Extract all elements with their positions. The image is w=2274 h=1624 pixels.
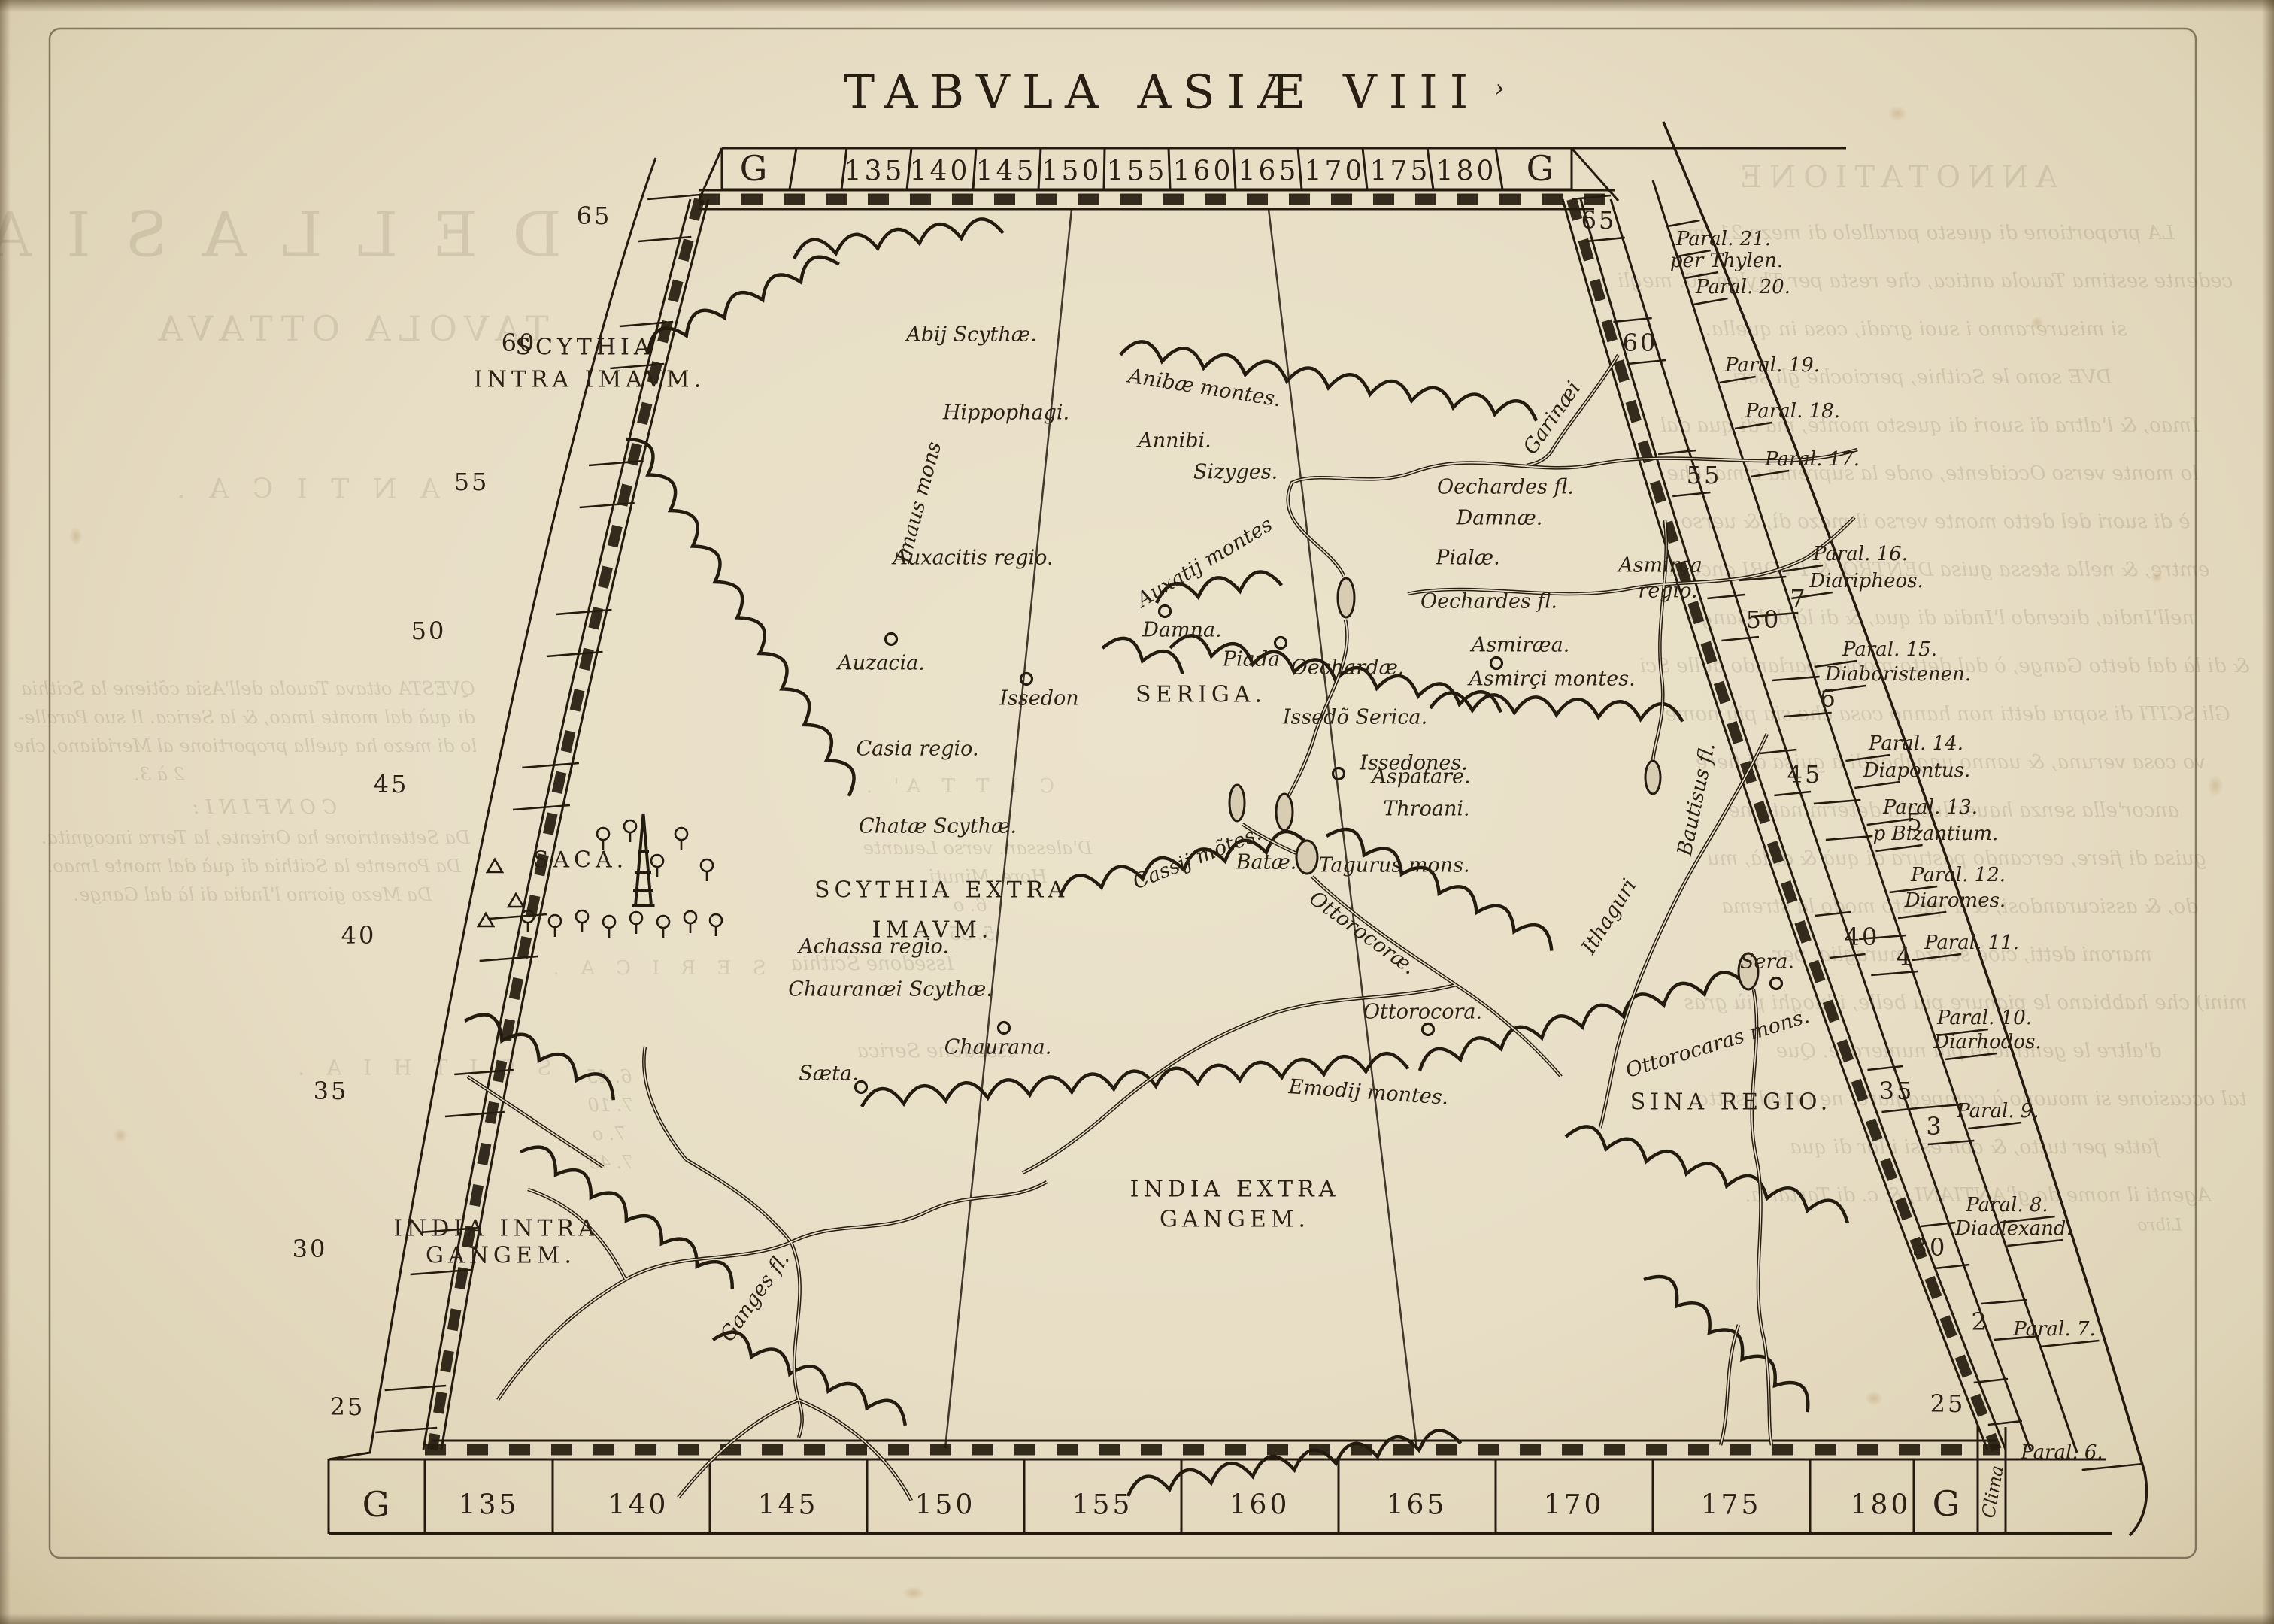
map-label: Chatæ Scythæ. [859, 815, 1017, 838]
map-label: Issedõ Serica. [1283, 706, 1427, 729]
plate-border [50, 29, 2196, 1558]
map-label: Piada [1223, 648, 1280, 671]
right-latitude-number: 35 [1879, 1077, 1915, 1105]
parallel-band-label: Paral. 13. [1883, 796, 1978, 819]
left-latitude-number: 65 [577, 201, 612, 230]
climate-number: 7 [1790, 584, 1807, 613]
map-label: Abij Scythæ. [906, 323, 1036, 347]
parallel-band-label: Paral. 6. [2021, 1441, 2103, 1464]
parallel-band-label: Paral. 14. [1869, 732, 1963, 755]
right-latitude-number: 45 [1787, 760, 1823, 789]
map-label: INDIA EXTRA [1130, 1177, 1340, 1203]
bottom-longitude-number: 175 [1701, 1490, 1762, 1521]
right-latitude-number: 65 [1581, 206, 1617, 235]
parallel-band-label: p Bizantium. [1873, 823, 1999, 845]
parallel-band-label: Paral. 17. [1765, 448, 1860, 471]
mountain-ranges [465, 217, 1852, 1496]
top-longitude-number: 150 [1041, 156, 1102, 187]
parallel-band-label: Paral. 16. [1813, 543, 1908, 565]
climate-number: 2 [1971, 1307, 1988, 1336]
parallel-band-label: Paral. 7. [2013, 1318, 2095, 1341]
right-latitude-number: 30 [1912, 1233, 1948, 1262]
parallel-band-label: Paral. 8. [1966, 1194, 2048, 1216]
parallel-band-label: Diarhodos. [1933, 1031, 2041, 1053]
map-label: Sizyges. [1193, 461, 1278, 484]
map-label: › [1494, 74, 1505, 104]
map-label: Damna. [1142, 619, 1221, 642]
left-latitude-number: 25 [330, 1392, 365, 1421]
map-label: INDIA INTRA [393, 1216, 599, 1242]
corner-g-letter: G [362, 1484, 390, 1525]
fox-spot [1887, 105, 1907, 122]
corner-g-letter: G [740, 148, 768, 189]
bottom-longitude-number: 155 [1072, 1490, 1133, 1521]
right-latitude-number: 60 [1623, 329, 1658, 357]
map-label: SCYTHIA EXTRA [814, 877, 1069, 904]
parallel-band-label: Paral. 19. [1725, 354, 1820, 377]
left-latitude-number: 50 [411, 617, 447, 645]
top-longitude-number: 175 [1370, 156, 1431, 187]
map-label: Auxacitis regio. [893, 547, 1053, 570]
corner-g-letter: G [1527, 148, 1554, 189]
bottom-longitude-number: 180 [1851, 1490, 1912, 1521]
right-latitude-number: 55 [1687, 461, 1722, 489]
parallel-band-label: per Thylen. [1670, 250, 1783, 272]
fox-spot [2207, 774, 2224, 797]
left-latitude-number: 40 [341, 921, 377, 950]
map-label: INTRA IMAVM. [474, 367, 706, 393]
map-label: Ottorocora. [1363, 1001, 1482, 1024]
bottom-longitude-number: 165 [1387, 1490, 1448, 1521]
map-label: Pialæ. [1436, 547, 1500, 570]
antique-map-page: D E L L A S I ATAVOLA OTTAVAA N T I C A … [0, 0, 2274, 1624]
top-longitude-number: 160 [1173, 156, 1234, 187]
map-label: GANGEM. [426, 1243, 576, 1269]
top-longitude-number: 155 [1107, 156, 1168, 187]
top-longitude-number: 135 [844, 156, 905, 187]
top-longitude-number: 170 [1305, 156, 1366, 187]
map-label: Asmiræa. [1472, 634, 1570, 657]
map-label: Asmirçi montes. [1469, 668, 1635, 691]
right-latitude-number: 50 [1746, 605, 1781, 634]
map-label: Aspatare. [1372, 765, 1470, 789]
top-longitude-number: 145 [976, 156, 1037, 187]
parallel-band-label: Diaripheos. [1809, 570, 1923, 592]
map-label: GANGEM. [1160, 1207, 1310, 1233]
parallel-band-label: Paral. 12. [1911, 864, 2006, 886]
map-label: Auzacia. [838, 652, 925, 675]
climate-number: 3 [1926, 1112, 1943, 1141]
bottom-longitude-number: 150 [915, 1490, 976, 1521]
climate-number: 6 [1820, 684, 1837, 713]
rivers [468, 355, 1857, 1501]
corner-g-letter: G [1933, 1483, 1960, 1524]
map-label: Oechardæ. [1291, 656, 1405, 680]
parallel-band-label: Paral. 11. [1924, 932, 2019, 954]
bottom-longitude-number: 160 [1229, 1490, 1290, 1521]
map-label: Sera. [1740, 950, 1794, 974]
parallel-band-label: Paral. 10. [1937, 1007, 2032, 1029]
left-latitude-number: 35 [314, 1077, 349, 1105]
climate-number: 4 [1896, 943, 1913, 971]
parallel-band-label: Diapontus. [1863, 759, 1971, 782]
map-label: Chaurana. [944, 1036, 1052, 1059]
right-latitude-number: 40 [1845, 923, 1880, 951]
parallel-band-label: Paral. 15. [1842, 638, 1937, 661]
parallel-band-label: Paral. 21. [1676, 228, 1771, 250]
parallel-band-label: Diaboristenen. [1825, 663, 1971, 686]
map-label: SERIGA. [1135, 682, 1266, 708]
map-title: TABVLA ASIÆ VIII [844, 65, 1480, 120]
map-label: Chauranæi Scythæ. [788, 978, 993, 1001]
top-longitude-number: 165 [1239, 156, 1299, 187]
saca-tower-and-trees [478, 814, 722, 938]
map-label: Hippophagi. [943, 401, 1069, 425]
fox-spot [2151, 571, 2163, 583]
map-label: Issedon [999, 687, 1078, 710]
map-label: Annibi. [1138, 429, 1211, 453]
map-label: Batæ. [1236, 851, 1297, 874]
top-longitude-number: 140 [910, 156, 971, 187]
map-label: Sæta. [799, 1062, 858, 1086]
parallel-band-label: Diaalexand. [1955, 1217, 2072, 1240]
map-label: Achassa regio. [799, 935, 949, 959]
map-label: Casia regio. [856, 738, 978, 761]
map-label: SACA. [533, 847, 628, 874]
parallel-band-label: Paral. 9. [1957, 1100, 2039, 1123]
top-longitude-number: 180 [1436, 156, 1497, 187]
fox-spot [113, 1128, 128, 1143]
map-label: SINA REGIO. [1630, 1089, 1833, 1116]
map-label: Throani. [1383, 798, 1469, 821]
bottom-longitude-number: 135 [459, 1490, 520, 1521]
map-label: Tagurus mons. [1318, 854, 1469, 877]
parallel-band-label: Diaromes. [1905, 889, 2006, 912]
bottom-longitude-number: 170 [1544, 1490, 1605, 1521]
map-label: Oechardes fl. [1437, 476, 1574, 499]
left-latitude-number: 60 [502, 329, 537, 357]
bottom-longitude-number: 145 [758, 1490, 819, 1521]
left-latitude-number: 55 [454, 468, 490, 496]
left-latitude-number: 45 [374, 770, 409, 798]
fox-spot [69, 526, 83, 546]
fox-spot [2030, 316, 2044, 329]
fox-spot [902, 1586, 925, 1600]
map-label: Damnæ. [1457, 507, 1543, 530]
parallel-band-label: Paral. 18. [1745, 400, 1840, 423]
map-label: Oechardes fl. [1420, 590, 1557, 614]
right-latitude-number: 25 [1930, 1389, 1966, 1418]
fox-spot [1865, 1391, 1883, 1406]
map-label: regio. [1638, 580, 1697, 603]
parallel-band-label: Paral. 20. [1696, 276, 1790, 298]
left-latitude-number: 30 [293, 1235, 328, 1263]
map-label: Asmirça [1618, 554, 1702, 577]
bottom-longitude-number: 140 [608, 1490, 669, 1521]
